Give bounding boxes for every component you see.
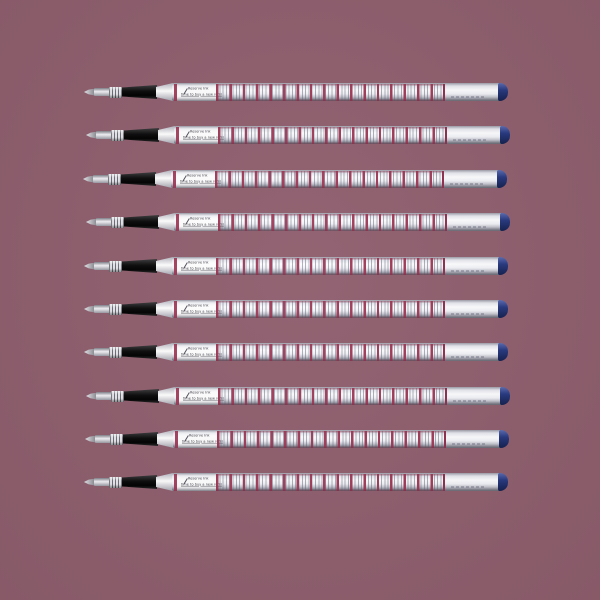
refill-cone: [155, 170, 172, 188]
refill-barrel: Reserve Ink time to buy a new refill: [172, 257, 508, 275]
barrel-plain-section: [447, 126, 500, 144]
label-line-1: Reserve Ink: [188, 477, 209, 480]
refill-cone: [156, 473, 173, 491]
refill-knurled-collar: [111, 130, 124, 141]
product-photo: Reserve Ink time to buy a new refill Res…: [0, 0, 600, 600]
ink-refill-3: Reserve Ink time to buy a new refill: [83, 170, 507, 188]
refill-black-section: [124, 389, 159, 403]
refill-cone: [158, 387, 175, 405]
ink-level-stripes: [218, 388, 447, 405]
ink-refill-2: Reserve Ink time to buy a new refill: [86, 126, 510, 144]
ink-refill-4: Reserve Ink time to buy a new refill: [86, 213, 510, 231]
fine-print: [451, 313, 485, 315]
label-line-1: Reserve Ink: [189, 434, 210, 437]
refill-barrel: Reserve Ink time to buy a new refill: [173, 430, 509, 448]
refill-black-section: [122, 475, 157, 489]
fine-print: [453, 139, 487, 141]
refill-label: Reserve Ink time to buy a new refill: [177, 84, 216, 101]
blue-end-cap: [498, 300, 508, 318]
refill-black-section: [124, 215, 159, 229]
refill-label: Reserve Ink time to buy a new refill: [177, 474, 216, 491]
blue-end-cap: [500, 387, 510, 405]
refill-tip-tube: [94, 478, 110, 486]
barrel-plain-section: [445, 83, 498, 101]
refill-knurled-collar: [109, 477, 122, 488]
refill-barrel: Reserve Ink time to buy a new refill: [174, 126, 510, 144]
refill-tip-tube: [95, 435, 111, 443]
refill-label: Reserve Ink time to buy a new refill: [179, 127, 218, 144]
refill-barrel: Reserve Ink time to buy a new refill: [172, 83, 508, 101]
label-line-1: Reserve Ink: [190, 391, 211, 394]
refill-tip-tube: [94, 88, 110, 96]
label-line-1: Reserve Ink: [188, 304, 209, 307]
ink-level-stripes: [216, 301, 445, 318]
ink-refill-6: Reserve Ink time to buy a new refill: [84, 300, 508, 318]
blue-end-cap: [498, 473, 508, 491]
refill-tip-tube: [96, 131, 112, 139]
blue-end-cap: [500, 126, 510, 144]
fine-print: [453, 226, 487, 228]
refill-cone: [156, 343, 173, 361]
blue-end-cap: [498, 83, 508, 101]
refill-cone: [156, 83, 173, 101]
refill-tip-tube: [96, 392, 112, 400]
fine-print: [453, 400, 487, 402]
ink-refill-8: Reserve Ink time to buy a new refill: [86, 387, 510, 405]
refill-label: Reserve Ink time to buy a new refill: [178, 431, 217, 448]
fine-print: [451, 270, 485, 272]
refill-knurled-collar: [109, 87, 122, 98]
barrel-plain-section: [444, 170, 497, 188]
refill-tip-tube: [94, 305, 110, 313]
label-line-1: Reserve Ink: [190, 130, 211, 133]
refill-knurled-collar: [109, 261, 122, 272]
ink-refill-5: Reserve Ink time to buy a new refill: [84, 257, 508, 275]
ink-level-stripes: [215, 171, 444, 188]
barrel-plain-section: [445, 300, 498, 318]
fine-print: [451, 96, 485, 98]
refill-label: Reserve Ink time to buy a new refill: [179, 214, 218, 231]
ink-refill-7: Reserve Ink time to buy a new refill: [84, 343, 508, 361]
ink-level-stripes: [216, 344, 445, 361]
blue-end-cap: [497, 170, 507, 188]
ink-level-stripes: [218, 214, 447, 231]
refill-barrel: Reserve Ink time to buy a new refill: [172, 343, 508, 361]
fine-print: [451, 356, 485, 358]
refill-tip-tube: [93, 175, 109, 183]
refill-label: Reserve Ink time to buy a new refill: [179, 388, 218, 405]
refill-barrel: Reserve Ink time to buy a new refill: [171, 170, 507, 188]
barrel-plain-section: [445, 473, 498, 491]
barrel-plain-section: [445, 343, 498, 361]
label-line-1: Reserve Ink: [190, 217, 211, 220]
refill-tip-tube: [94, 262, 110, 270]
ink-refill-10: Reserve Ink time to buy a new refill: [84, 473, 508, 491]
refill-knurled-collar: [111, 217, 124, 228]
refill-barrel: Reserve Ink time to buy a new refill: [174, 213, 510, 231]
barrel-plain-section: [445, 257, 498, 275]
refill-black-section: [122, 302, 157, 316]
refill-knurled-collar: [109, 304, 122, 315]
refill-black-section: [124, 128, 159, 142]
refill-barrel: Reserve Ink time to buy a new refill: [172, 300, 508, 318]
blue-end-cap: [500, 213, 510, 231]
refill-knurled-collar: [110, 434, 123, 445]
barrel-plain-section: [447, 213, 500, 231]
refill-knurled-collar: [109, 347, 122, 358]
fine-print: [451, 486, 485, 488]
refill-label: Reserve Ink time to buy a new refill: [177, 258, 216, 275]
ink-level-stripes: [217, 431, 446, 448]
ink-level-stripes: [216, 258, 445, 275]
refill-cone: [158, 126, 175, 144]
blue-end-cap: [499, 430, 509, 448]
refill-cone: [158, 213, 175, 231]
ink-level-stripes: [218, 127, 447, 144]
blue-end-cap: [498, 343, 508, 361]
fine-print: [452, 443, 486, 445]
refill-cone: [157, 430, 174, 448]
ink-level-stripes: [216, 84, 445, 101]
refill-black-section: [122, 85, 157, 99]
refill-cone: [156, 257, 173, 275]
refill-black-section: [121, 172, 156, 186]
refill-label: Reserve Ink time to buy a new refill: [176, 171, 215, 188]
label-line-1: Reserve Ink: [188, 261, 209, 264]
refill-cone: [156, 300, 173, 318]
label-line-1: Reserve Ink: [188, 347, 209, 350]
refill-black-section: [122, 259, 157, 273]
barrel-plain-section: [447, 387, 500, 405]
refill-barrel: Reserve Ink time to buy a new refill: [174, 387, 510, 405]
refill-tip-tube: [96, 218, 112, 226]
refill-black-section: [123, 432, 158, 446]
blue-end-cap: [498, 257, 508, 275]
ink-level-stripes: [216, 474, 445, 491]
refill-black-section: [122, 345, 157, 359]
refill-label: Reserve Ink time to buy a new refill: [177, 344, 216, 361]
refill-label: Reserve Ink time to buy a new refill: [177, 301, 216, 318]
refill-knurled-collar: [111, 391, 124, 402]
label-line-1: Reserve Ink: [188, 87, 209, 90]
refill-barrel: Reserve Ink time to buy a new refill: [172, 473, 508, 491]
barrel-plain-section: [446, 430, 499, 448]
ink-refill-1: Reserve Ink time to buy a new refill: [84, 83, 508, 101]
refill-knurled-collar: [108, 174, 121, 185]
fine-print: [450, 183, 484, 185]
ink-refill-9: Reserve Ink time to buy a new refill: [85, 430, 509, 448]
label-line-1: Reserve Ink: [187, 174, 208, 177]
refill-tip-tube: [94, 348, 110, 356]
